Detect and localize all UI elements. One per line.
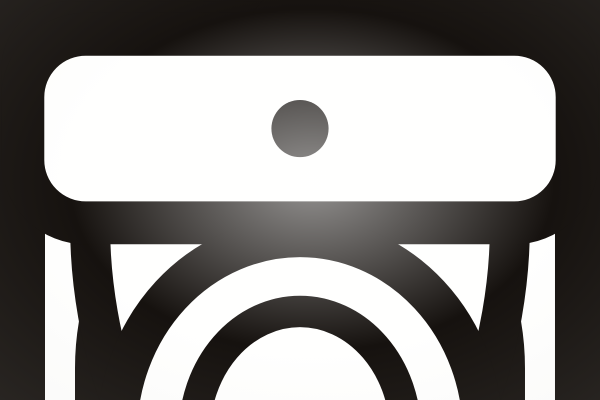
floor-plan-image <box>0 0 600 400</box>
toilet-icon <box>0 0 600 400</box>
